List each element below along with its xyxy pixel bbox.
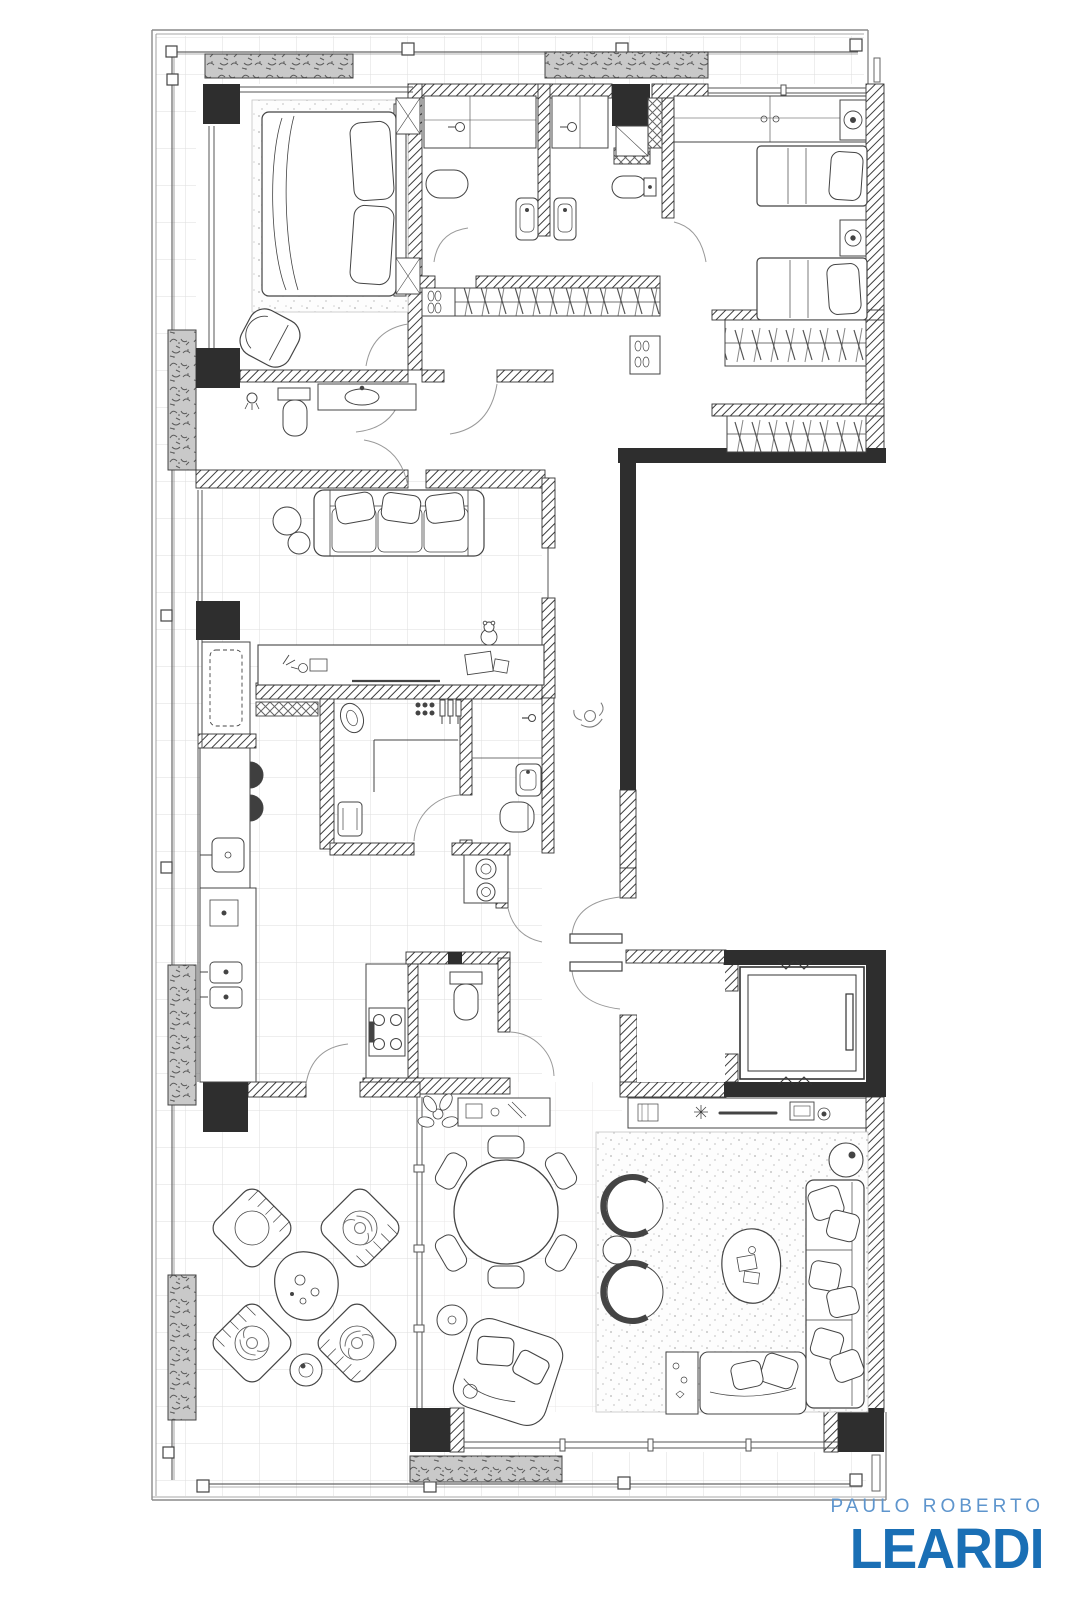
shower-head-icon bbox=[245, 393, 259, 410]
shower-bench bbox=[426, 170, 468, 198]
wc-toilet bbox=[500, 802, 534, 832]
wall-tap bbox=[529, 715, 536, 722]
curved-armchair bbox=[603, 1177, 663, 1235]
tall-cabinet bbox=[202, 642, 250, 734]
master-bedroom bbox=[234, 98, 420, 373]
shaft bbox=[648, 98, 662, 148]
plant-icon bbox=[694, 1105, 708, 1119]
side-table bbox=[288, 532, 310, 554]
sofa-pillow bbox=[424, 492, 465, 524]
second-bedroom bbox=[674, 96, 867, 452]
chaise-side-table bbox=[666, 1352, 698, 1414]
sofa-pillow bbox=[380, 491, 422, 524]
tv-living-room bbox=[596, 1098, 868, 1414]
walk-in-closet bbox=[422, 288, 660, 374]
logo-realtor-name: PAULO ROBERTO bbox=[830, 1497, 1044, 1516]
side-table bbox=[273, 507, 301, 535]
entry-double-door bbox=[570, 934, 622, 971]
nightstand bbox=[840, 220, 866, 256]
side-table bbox=[603, 1236, 631, 1264]
bedroom-armchair bbox=[234, 303, 305, 372]
low-shelf bbox=[256, 702, 318, 716]
laundry-sink bbox=[338, 802, 362, 836]
round-side-table bbox=[829, 1143, 863, 1177]
pillow bbox=[349, 121, 394, 202]
elevator bbox=[637, 961, 864, 1085]
master-ensuite-bathroom bbox=[245, 384, 416, 436]
nightstand bbox=[840, 100, 866, 140]
sink bbox=[554, 198, 576, 240]
shoe-rack bbox=[630, 336, 660, 374]
logo-brand-name: LEARDI bbox=[843, 1521, 1044, 1578]
coffee-table bbox=[275, 1252, 339, 1320]
toilet bbox=[278, 388, 310, 436]
curved-armchair bbox=[603, 1263, 663, 1321]
powder-toilet bbox=[450, 972, 482, 1020]
sink bbox=[516, 198, 538, 240]
floor-plan-drawing bbox=[0, 0, 1069, 1600]
person bbox=[573, 703, 607, 731]
notebooks bbox=[465, 651, 494, 674]
dining-table bbox=[454, 1160, 558, 1264]
toilet bbox=[612, 176, 656, 198]
nightstand bbox=[396, 258, 420, 294]
washer-dryer bbox=[464, 855, 508, 903]
leardi-logo: PAULO ROBERTO LEARDI bbox=[830, 1497, 1044, 1578]
wc-sink bbox=[516, 764, 541, 796]
floor-plan-page: PAULO ROBERTO LEARDI bbox=[0, 0, 1069, 1600]
shower-valve bbox=[456, 123, 465, 132]
elevator-rail bbox=[846, 994, 853, 1050]
sofa-pillow bbox=[334, 491, 376, 525]
stove bbox=[369, 1008, 405, 1056]
shower-valve bbox=[568, 123, 577, 132]
single-bed bbox=[757, 146, 867, 206]
single-bed bbox=[757, 258, 867, 320]
pillow bbox=[349, 205, 394, 286]
nightstand bbox=[396, 98, 420, 134]
sink bbox=[345, 389, 379, 405]
shoe-cabinet bbox=[422, 288, 455, 316]
